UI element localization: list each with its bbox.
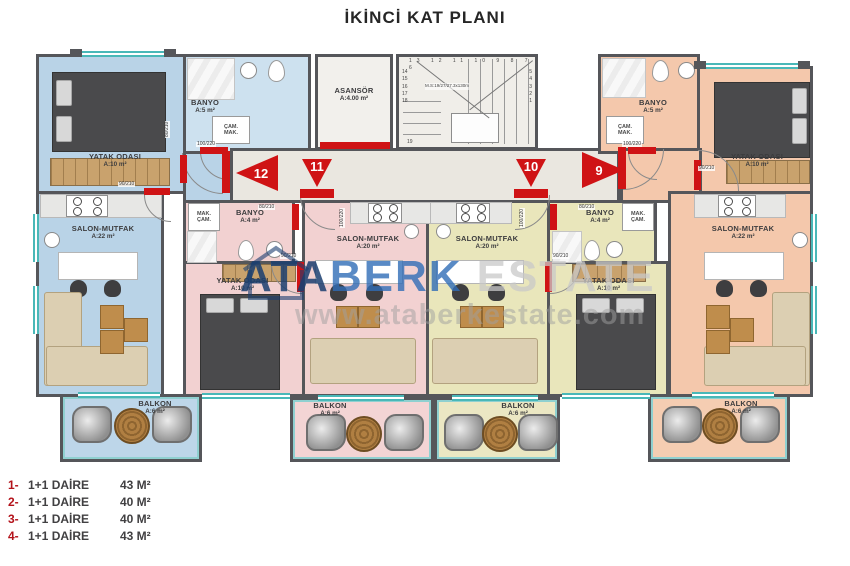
window xyxy=(33,214,39,262)
burner xyxy=(461,204,470,213)
washing-machine: ÇAM. MAK. xyxy=(606,116,644,144)
legend-type: 1+1 DAİRE xyxy=(28,528,120,545)
washing-machine: MAK. ÇAM. xyxy=(622,203,654,231)
coffee-table xyxy=(460,306,482,328)
burner xyxy=(93,207,102,216)
coffee-table xyxy=(730,318,754,342)
burner xyxy=(373,213,382,222)
stove xyxy=(66,195,108,217)
dining-chair xyxy=(452,284,469,301)
door-size-label: 80/210 xyxy=(578,205,595,210)
coffee-table xyxy=(336,306,358,328)
coffee-table xyxy=(100,330,124,354)
wardrobe xyxy=(726,160,810,184)
window-sill xyxy=(164,49,176,57)
dining-table xyxy=(58,252,138,280)
door-size-label: 90/210 xyxy=(118,182,135,187)
sofa xyxy=(46,346,148,386)
entry-door-12 xyxy=(222,151,230,193)
balcony-chair xyxy=(72,406,112,443)
balcony-table xyxy=(702,408,738,444)
burner xyxy=(477,204,486,213)
shower-area xyxy=(187,231,217,263)
legend-area: 43 M² xyxy=(120,528,180,545)
stair-number-bottom: 19 xyxy=(407,139,413,146)
burner xyxy=(742,197,751,206)
burner xyxy=(742,207,751,216)
window xyxy=(33,286,39,334)
kitchen-sink xyxy=(404,224,419,239)
door-size-label: 80/210 xyxy=(165,121,170,138)
legend-number: 3- xyxy=(8,511,28,528)
stove xyxy=(368,203,402,223)
shower-area xyxy=(602,58,646,98)
stair-note: M.S:19/27/27.3x130m xyxy=(425,83,469,90)
door-number-label: 12 xyxy=(254,166,268,181)
kitchen-sink xyxy=(44,232,60,248)
door-number-label: 10 xyxy=(524,159,538,174)
window xyxy=(562,393,650,399)
burner xyxy=(461,213,470,222)
coffee-table xyxy=(706,305,730,329)
burner xyxy=(724,207,733,216)
window-sill xyxy=(798,61,810,69)
sofa xyxy=(310,338,416,384)
dining-chair xyxy=(366,284,383,301)
door-size-label: 90/210 xyxy=(698,166,715,171)
coffee-table xyxy=(124,318,148,342)
burner xyxy=(93,197,102,206)
window xyxy=(202,393,290,399)
burner xyxy=(73,207,82,216)
balcony-table xyxy=(114,408,150,444)
legend-number: 2- xyxy=(8,494,28,511)
balcony-chair xyxy=(152,406,192,443)
balcony-chair xyxy=(518,414,558,451)
burner xyxy=(389,204,398,213)
washing-machine: ÇAM. MAK. xyxy=(212,116,250,144)
door-size-label: 100/220 xyxy=(196,142,216,147)
balcony-door-window xyxy=(692,392,774,398)
door-size-label: 90/210 xyxy=(552,254,569,259)
legend-row: 3- 1+1 DAİRE 40 M² xyxy=(8,511,180,528)
window xyxy=(811,214,817,262)
interior-door xyxy=(144,188,170,195)
coffee-table xyxy=(482,306,504,328)
pillow xyxy=(56,116,72,142)
door-size-label: 100/220 xyxy=(622,142,642,147)
sink xyxy=(606,241,623,258)
toilet xyxy=(652,60,669,82)
stair-numbers-top: 13 12 11 10 9 8 7 6 xyxy=(409,58,535,73)
balcony-chair xyxy=(384,414,424,451)
pillow xyxy=(206,298,234,313)
entry-door-11 xyxy=(300,189,334,198)
balcony-chair xyxy=(444,414,484,451)
legend-area: 40 M² xyxy=(120,511,180,528)
shower-area xyxy=(187,58,235,100)
interior-door xyxy=(180,155,187,183)
corridor xyxy=(230,148,620,203)
toilet xyxy=(268,60,285,82)
dining-chair xyxy=(104,280,121,297)
dining-table xyxy=(704,252,784,280)
sink xyxy=(678,62,695,79)
elevator xyxy=(315,54,393,150)
interior-door xyxy=(550,204,557,230)
balcony-door-window xyxy=(452,395,538,401)
dining-chair xyxy=(488,284,505,301)
staircase: 13 12 11 10 9 8 7 6 5 4 3 2 1 14 15 16 1… xyxy=(396,54,538,150)
legend-type: 1+1 DAİRE xyxy=(28,477,120,494)
legend-type: 1+1 DAİRE xyxy=(28,511,120,528)
burner xyxy=(477,213,486,222)
floor-plan: İKİNCİ KAT PLANI 13 12 11 10 9 8 7 6 5 4… xyxy=(0,0,850,566)
legend-row: 1- 1+1 DAİRE 43 M² xyxy=(8,477,180,494)
burner xyxy=(724,197,733,206)
balcony-door-window xyxy=(318,395,404,401)
coffee-table xyxy=(358,306,380,328)
washing-machine: MAK. ÇAM. xyxy=(188,203,220,231)
pillow xyxy=(56,80,72,106)
balcony-table xyxy=(482,416,518,452)
interior-door xyxy=(628,147,656,154)
stair-landing xyxy=(451,113,499,143)
balcony-table xyxy=(346,416,382,452)
burner xyxy=(73,197,82,206)
dining-chair xyxy=(330,284,347,301)
toilet xyxy=(584,240,600,261)
window xyxy=(811,286,817,334)
entry-door-10 xyxy=(514,189,548,198)
stove xyxy=(718,195,756,217)
coffee-table xyxy=(100,305,124,329)
legend-area: 40 M² xyxy=(120,494,180,511)
window-sill xyxy=(694,61,706,69)
legend: 1- 1+1 DAİRE 43 M² 2- 1+1 DAİRE 40 M² 3-… xyxy=(8,477,180,545)
dining-table xyxy=(436,260,524,284)
coffee-table xyxy=(706,330,730,354)
house-logo-icon xyxy=(238,244,314,302)
balcony-door-window xyxy=(78,392,160,398)
door-size-label: 100/220 xyxy=(340,208,345,228)
pillow xyxy=(582,298,610,313)
door-size-label: 100/220 xyxy=(520,208,525,228)
wardrobe xyxy=(50,158,170,186)
dining-table xyxy=(315,260,403,284)
kitchen-sink xyxy=(436,224,451,239)
window xyxy=(82,51,164,57)
sofa xyxy=(432,338,538,384)
dining-chair xyxy=(716,280,733,297)
legend-row: 4- 1+1 DAİRE 43 M² xyxy=(8,528,180,545)
sink xyxy=(240,62,257,79)
balcony-chair xyxy=(662,406,702,443)
legend-type: 1+1 DAİRE xyxy=(28,494,120,511)
wardrobe xyxy=(572,264,646,282)
dining-chair xyxy=(750,280,767,297)
balcony-chair xyxy=(740,406,780,443)
stair-numbers-left: 14 15 16 17 18 xyxy=(402,69,408,105)
page-title: İKİNCİ KAT PLANI xyxy=(0,8,850,28)
legend-number: 1- xyxy=(8,477,28,494)
window-sill xyxy=(70,49,82,57)
legend-row: 2- 1+1 DAİRE 40 M² xyxy=(8,494,180,511)
door-size-label: 80/210 xyxy=(258,205,275,210)
kitchen-sink xyxy=(792,232,808,248)
burner xyxy=(389,213,398,222)
legend-number: 4- xyxy=(8,528,28,545)
pillow xyxy=(792,88,807,114)
stove xyxy=(456,203,490,223)
interior-door xyxy=(200,147,228,154)
window xyxy=(706,63,798,69)
pillow xyxy=(616,298,644,313)
legend-area: 43 M² xyxy=(120,477,180,494)
pillow xyxy=(792,118,807,144)
door-number-label: 11 xyxy=(310,159,324,174)
stair-numbers-right: 5 4 3 2 1 xyxy=(529,69,532,105)
interior-door xyxy=(545,262,552,292)
door-number-label: 9 xyxy=(595,163,602,178)
interior-door xyxy=(292,204,299,230)
balcony-chair xyxy=(306,414,346,451)
burner xyxy=(373,204,382,213)
elevator-sill xyxy=(320,142,390,149)
